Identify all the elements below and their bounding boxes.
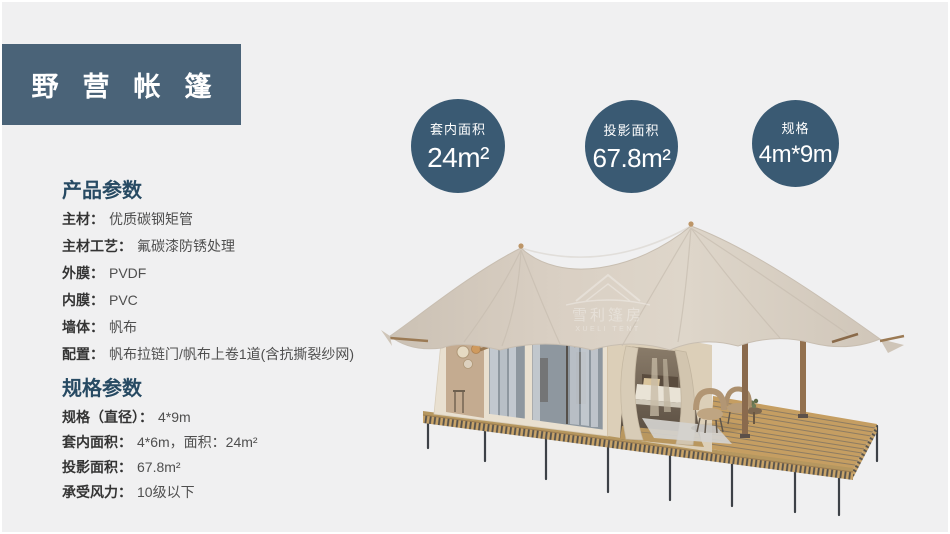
stat-badge-projection-area: 投影面积 67.8m² bbox=[585, 100, 678, 193]
param-row: 内膜：PVC bbox=[62, 293, 392, 308]
param-value: 4*9m bbox=[158, 409, 191, 425]
param-label: 承受风力： bbox=[62, 484, 132, 500]
stat-label: 规格 bbox=[781, 118, 809, 137]
param-row: 规格（直径）：4*9m bbox=[62, 410, 392, 425]
param-value: PVDF bbox=[109, 265, 146, 281]
param-label: 墙体： bbox=[62, 319, 104, 335]
watermark-cn: 雪利篷房 bbox=[572, 306, 644, 324]
stat-value: 4m*9m bbox=[759, 141, 833, 169]
param-value: 帆布拉链门/帆布上卷1道(含抗撕裂纱网) bbox=[109, 346, 354, 362]
stat-label: 套内面积 bbox=[430, 119, 486, 138]
param-row: 投影面积：67.8m² bbox=[62, 460, 392, 475]
tent-product-image: 雪利篷房 XUELI TENT bbox=[380, 212, 950, 534]
param-row: 承受风力：10级以下 bbox=[62, 485, 392, 500]
param-label: 主材工艺： bbox=[62, 238, 132, 254]
param-value: 氟碳漆防锈处理 bbox=[137, 238, 235, 254]
param-label: 套内面积： bbox=[62, 434, 132, 450]
param-row: 主材：优质碳钢矩管 bbox=[62, 212, 392, 227]
param-row: 套内面积：4*6m，面积：24m² bbox=[62, 435, 392, 450]
section-heading-spec-params: 规格参数 bbox=[62, 378, 392, 400]
param-value: 帆布 bbox=[109, 319, 137, 335]
param-label: 规格（直径）： bbox=[62, 409, 153, 425]
watermark-en: XUELI TENT bbox=[575, 326, 640, 333]
param-row: 配置：帆布拉链门/帆布上卷1道(含抗撕裂纱网) bbox=[62, 347, 392, 362]
param-label: 投影面积： bbox=[62, 459, 132, 475]
page-title-banner: 野营帐篷 bbox=[2, 44, 241, 125]
cabin-window-left bbox=[488, 338, 526, 420]
param-label: 主材： bbox=[62, 211, 104, 227]
param-row: 外膜：PVDF bbox=[62, 266, 392, 281]
canopy bbox=[381, 221, 904, 353]
stat-value: 67.8m² bbox=[593, 143, 671, 174]
param-value: 67.8m² bbox=[137, 459, 181, 475]
stat-badge-inner-area: 套内面积 24m² bbox=[411, 99, 505, 193]
stat-badge-size: 规格 4m*9m bbox=[752, 100, 839, 187]
canopy-peak-cap bbox=[688, 221, 693, 226]
param-label: 配置： bbox=[62, 346, 104, 362]
wall-decor-plate bbox=[457, 346, 469, 358]
stat-value: 24m² bbox=[427, 142, 489, 174]
param-value: 4*6m，面积：24m² bbox=[137, 434, 258, 450]
param-row: 墙体：帆布 bbox=[62, 320, 392, 335]
param-value: 优质碳钢矩管 bbox=[109, 211, 193, 227]
param-label: 内膜： bbox=[62, 292, 104, 308]
param-value: 10级以下 bbox=[137, 484, 195, 500]
section-heading-product-params: 产品参数 bbox=[62, 180, 392, 202]
product-params-list: 主材：优质碳钢矩管 主材工艺：氟碳漆防锈处理 外膜：PVDF 内膜：PVC 墙体… bbox=[62, 212, 392, 362]
param-label: 外膜： bbox=[62, 265, 104, 281]
wall-decor-plate bbox=[464, 360, 473, 369]
param-row: 主材工艺：氟碳漆防锈处理 bbox=[62, 239, 392, 254]
spec-params-list: 规格（直径）：4*9m 套内面积：4*6m，面积：24m² 投影面积：67.8m… bbox=[62, 410, 392, 500]
spec-column: 产品参数 主材：优质碳钢矩管 主材工艺：氟碳漆防锈处理 外膜：PVDF 内膜：P… bbox=[62, 180, 392, 510]
stat-label: 投影面积 bbox=[603, 120, 659, 139]
page-title: 野营帐篷 bbox=[32, 65, 236, 104]
canopy-peak-cap bbox=[518, 243, 523, 248]
param-value: PVC bbox=[109, 292, 138, 308]
